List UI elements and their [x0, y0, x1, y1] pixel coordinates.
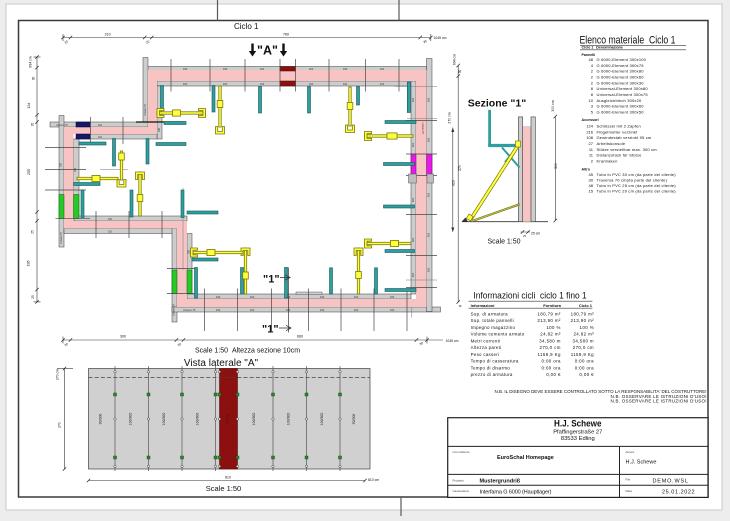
svg-text:H.J. Schewe: H.J. Schewe [626, 459, 657, 465]
svg-text:90/300: 90/300 [226, 414, 230, 425]
svg-text:Flügelmutter verzinkt: Flügelmutter verzinkt [597, 129, 639, 134]
svg-text:300: 300 [411, 97, 415, 102]
svg-text:300: 300 [427, 232, 431, 237]
svg-text:Vista laterale "A": Vista laterale "A" [184, 358, 259, 369]
svg-text:100 %: 100 % [546, 325, 560, 330]
svg-text:Pfaffingerstraße 27: Pfaffingerstraße 27 [553, 430, 602, 436]
svg-text:90/300: 90/300 [99, 414, 103, 425]
svg-text:100: 100 [309, 67, 314, 71]
svg-text:195: 195 [27, 261, 31, 267]
svg-text:Tubo in PVC 20 cm (da parte de: Tubo in PVC 20 cm (da parte del cliente) [597, 189, 677, 194]
svg-text:300: 300 [427, 192, 431, 197]
svg-text:Schlüssel mit 2 Zapfen: Schlüssel mit 2 Zapfen [597, 123, 641, 128]
svg-text:0,00 €: 0,00 € [579, 372, 594, 377]
svg-text:0,00 €: 0,00 € [546, 372, 561, 377]
svg-text:210: 210 [105, 33, 111, 37]
svg-text:270 cm: 270 cm [56, 369, 60, 380]
svg-text:Altezza pareti: Altezza pareti [471, 345, 502, 350]
svg-text:20: 20 [31, 123, 35, 127]
svg-text:180,79 m²: 180,79 m² [571, 312, 595, 317]
svg-text:Univers 75: Univers 75 [183, 308, 196, 312]
svg-text:810: 810 [225, 476, 231, 480]
svg-text:270,0 cm: 270,0 cm [573, 345, 594, 350]
svg-text:15: 15 [589, 189, 594, 194]
svg-text:Altro: Altro [582, 168, 591, 172]
svg-text:25.01.2022: 25.01.2022 [662, 489, 695, 495]
svg-text:Universal-Element 300x80: Universal-Element 300x80 [597, 86, 649, 91]
svg-text:Fornitura: Fornitura [543, 303, 561, 308]
svg-text:134: 134 [27, 103, 31, 109]
svg-text:100: 100 [223, 67, 228, 71]
svg-text:Progetto: Progetto [453, 479, 465, 483]
svg-text:Ciclo 1 Denominazione: Ciclo 1 Denominazione [582, 46, 623, 50]
svg-text:100: 100 [108, 231, 113, 234]
svg-text:300: 300 [427, 267, 431, 272]
svg-text:100: 100 [354, 295, 359, 299]
svg-text:100: 100 [380, 67, 385, 71]
svg-text:Tubo in PVC 25 cm (da parte de: Tubo in PVC 25 cm (da parte del cliente) [597, 183, 677, 188]
svg-text:Tubo in PVC 30 cm (da parte de: Tubo in PVC 30 cm (da parte del cliente) [597, 172, 677, 177]
svg-text:760: 760 [283, 33, 289, 37]
svg-text:1045 cm: 1045 cm [434, 36, 447, 40]
svg-text:1159,9 Kg: 1159,9 Kg [538, 352, 561, 357]
svg-text:Accessori: Accessori [582, 118, 599, 122]
svg-text:Univers 75: Univers 75 [60, 232, 63, 244]
svg-text:G 6000-Element 300x75: G 6000-Element 300x75 [597, 63, 645, 68]
svg-text:Autore: Autore [626, 450, 635, 454]
svg-text:Sup. totale pannelli: Sup. totale pannelli [471, 318, 514, 323]
svg-text:Tempo di disarmo: Tempo di disarmo [471, 365, 511, 370]
svg-text:Peso casseri: Peso casseri [471, 352, 500, 357]
svg-text:25: 25 [31, 295, 35, 299]
svg-text:100/300: 100/300 [196, 413, 200, 426]
svg-text:100: 100 [354, 308, 359, 312]
svg-text:G 6000-Element 300x100: G 6000-Element 300x100 [597, 57, 647, 62]
svg-text:24,82 m³: 24,82 m³ [540, 332, 561, 337]
svg-text:EuroSchal Homepage: EuroSchal Homepage [497, 455, 554, 461]
svg-text:30: 30 [589, 178, 594, 183]
svg-text:100: 100 [216, 295, 221, 299]
svg-text:100: 100 [320, 295, 325, 299]
svg-text:Informazioni cicli ciclo 1 fi: Informazioni cicli ciclo 1 fino 1 [473, 291, 586, 301]
svg-text:300: 300 [411, 272, 415, 277]
svg-text:694 cm: 694 cm [29, 56, 33, 67]
svg-text:Committente: Committente [453, 450, 470, 454]
svg-text:Scale 1:50 Altezza sezione 10: Scale 1:50 Altezza sezione 10cm [195, 348, 300, 355]
svg-text:124: 124 [586, 123, 593, 128]
svg-text:100/300: 100/300 [252, 413, 256, 426]
svg-text:100 %: 100 % [580, 325, 594, 330]
svg-text:213,90 m²: 213,90 m² [537, 318, 561, 323]
svg-text:300 cm: 300 cm [551, 100, 555, 111]
svg-text:Ciclo 1: Ciclo 1 [234, 22, 259, 31]
svg-text:100: 100 [183, 67, 188, 71]
svg-text:300: 300 [427, 137, 431, 142]
svg-text:660: 660 [297, 335, 303, 339]
svg-text:100: 100 [343, 67, 348, 71]
svg-text:Data: Data [626, 489, 633, 493]
svg-text:100: 100 [98, 124, 103, 127]
svg-text:48: 48 [589, 57, 594, 62]
svg-text:0:00 ora: 0:00 ora [541, 365, 560, 370]
svg-text:300: 300 [411, 142, 415, 147]
svg-text:DEMO.WSL: DEMO.WSL [653, 479, 689, 485]
svg-text:90/300: 90/300 [352, 414, 356, 425]
svg-text:100: 100 [260, 82, 265, 86]
svg-text:100: 100 [223, 82, 228, 86]
svg-text:100: 100 [183, 82, 188, 86]
svg-text:694 cm: 694 cm [453, 54, 457, 65]
svg-text:Scale 1:50: Scale 1:50 [206, 484, 241, 493]
svg-text:216: 216 [586, 129, 593, 134]
svg-text:G 6000-Element 300x30: G 6000-Element 300x30 [597, 80, 645, 85]
svg-text:629: 629 [452, 180, 456, 186]
svg-text:270,0 cm: 270,0 cm [540, 345, 561, 350]
svg-text:100: 100 [108, 218, 113, 221]
svg-text:Universal-Element 300x75: Universal-Element 300x75 [597, 92, 649, 97]
svg-text:N.B. OSSERVARE LE ISTRUZIONI D: N.B. OSSERVARE LE ISTRUZIONI D'USO! [611, 398, 707, 403]
svg-text:H.J. Schewe: H.J. Schewe [554, 419, 602, 430]
svg-text:100: 100 [309, 82, 314, 86]
svg-text:300: 300 [158, 127, 161, 132]
svg-text:300: 300 [120, 335, 126, 339]
svg-text:100: 100 [216, 308, 221, 312]
svg-text:"1": "1" [262, 324, 279, 336]
svg-text:Informazioni: Informazioni [471, 303, 495, 308]
svg-text:45: 45 [589, 172, 594, 177]
svg-text:Univers 75: Univers 75 [421, 122, 424, 134]
svg-text:G 6000-Element 300x60: G 6000-Element 300x60 [597, 104, 645, 109]
svg-text:10: 10 [589, 98, 594, 103]
svg-text:300: 300 [554, 163, 558, 169]
svg-text:Scale 1:50: Scale 1:50 [487, 239, 520, 246]
svg-text:G 6000-Element 300x50: G 6000-Element 300x50 [597, 109, 645, 114]
svg-text:300: 300 [411, 197, 415, 202]
svg-text:G 6000-Element 300x80: G 6000-Element 300x80 [597, 69, 645, 74]
svg-text:0:00 ora: 0:00 ora [575, 365, 594, 370]
svg-text:300: 300 [74, 167, 77, 172]
svg-text:30: 30 [32, 77, 36, 81]
svg-text:100: 100 [390, 295, 395, 299]
svg-text:Casseratura: Casseratura [453, 489, 470, 493]
svg-text:"1": "1" [263, 274, 280, 286]
svg-text:27: 27 [589, 141, 594, 146]
svg-text:1045 cm: 1045 cm [446, 339, 459, 343]
svg-text:Gewindestab verzinkt 95 cm: Gewindestab verzinkt 95 cm [597, 135, 652, 140]
svg-text:48: 48 [589, 183, 594, 188]
svg-text:83533 Edling: 83533 Edling [561, 436, 595, 442]
svg-text:100/300: 100/300 [129, 413, 133, 426]
svg-text:24,82 m³: 24,82 m³ [573, 332, 594, 337]
svg-text:108: 108 [586, 135, 593, 140]
svg-text:Ausgleichblech 300x20: Ausgleichblech 300x20 [597, 98, 643, 103]
svg-text:Sup. di armatura: Sup. di armatura [471, 312, 509, 317]
svg-text:Traversa 70 cm(da parte del cl: Traversa 70 cm(da parte del cliente) [597, 178, 668, 183]
svg-text:Univers 75: Univers 75 [144, 104, 147, 116]
svg-text:180,79 m²: 180,79 m² [537, 312, 561, 317]
svg-text:30: 30 [458, 70, 462, 74]
svg-text:25 cm: 25 cm [531, 231, 540, 235]
svg-text:Univers 30: Univers 30 [173, 304, 176, 316]
svg-text:Mustergrundriß: Mustergrundriß [480, 479, 521, 485]
svg-text:Interfama G 6000 (Hauptlager): Interfama G 6000 (Hauptlager) [480, 489, 552, 495]
svg-text:Metri correnti: Metri correnti [471, 338, 501, 343]
svg-text:100/300: 100/300 [287, 413, 291, 426]
svg-text:0:00 ora: 0:00 ora [575, 359, 594, 364]
svg-text:270: 270 [58, 422, 62, 428]
svg-text:255: 255 [27, 169, 31, 175]
svg-text:Sezione "1": Sezione "1" [468, 98, 526, 110]
svg-text:100: 100 [390, 308, 395, 312]
svg-text:100/300: 100/300 [162, 413, 166, 426]
svg-text:Arbeitskonsole: Arbeitskonsole [597, 141, 626, 146]
svg-text:100: 100 [250, 295, 255, 299]
svg-text:100: 100 [343, 82, 348, 86]
svg-text:Distanzstück für Stütze: Distanzstück für Stütze [597, 153, 643, 158]
svg-text:Elenco materiale Ciclo 1: Elenco materiale Ciclo 1 [580, 35, 676, 47]
svg-text:File: File [626, 478, 631, 482]
svg-text:prezzo di armatura: prezzo di armatura [471, 372, 513, 377]
svg-text:34,580 m: 34,580 m [572, 338, 594, 343]
svg-text:213,90 m²: 213,90 m² [571, 318, 595, 323]
svg-text:270 cm: 270 cm [448, 112, 452, 123]
svg-text:300: 300 [60, 162, 63, 167]
svg-text:300: 300 [427, 97, 431, 102]
svg-text:300: 300 [188, 249, 191, 254]
svg-text:G 6000-Element 300x60: G 6000-Element 300x60 [597, 74, 645, 79]
svg-text:100: 100 [98, 136, 103, 139]
svg-text:Impegno magazzino: Impegno magazzino [471, 325, 516, 330]
svg-text:1159,9 Kg: 1159,9 Kg [571, 352, 594, 357]
svg-text:100: 100 [260, 67, 265, 71]
svg-text:300: 300 [411, 237, 415, 242]
svg-text:25: 25 [31, 230, 35, 234]
svg-text:Tempo di casseratura: Tempo di casseratura [471, 359, 519, 364]
svg-text:Kranhaken: Kranhaken [597, 159, 618, 164]
svg-text:100: 100 [250, 308, 255, 312]
svg-text:Stütze verstellbar max. 300 cm: Stütze verstellbar max. 300 cm [597, 147, 658, 152]
svg-text:100: 100 [380, 82, 385, 86]
svg-text:100: 100 [320, 308, 325, 312]
svg-text:Ciclo 1: Ciclo 1 [579, 303, 593, 308]
svg-text:Volume cemento armato: Volume cemento armato [471, 332, 525, 337]
svg-text:100/300: 100/300 [320, 413, 324, 426]
svg-text:810 cm: 810 cm [368, 478, 379, 482]
svg-text:Univers 75: Univers 75 [56, 124, 68, 127]
svg-text:34,580 m: 34,580 m [539, 338, 561, 343]
svg-text:0:00 ora: 0:00 ora [541, 359, 560, 364]
svg-text:270: 270 [458, 165, 462, 171]
svg-text:"A": "A" [257, 44, 278, 58]
